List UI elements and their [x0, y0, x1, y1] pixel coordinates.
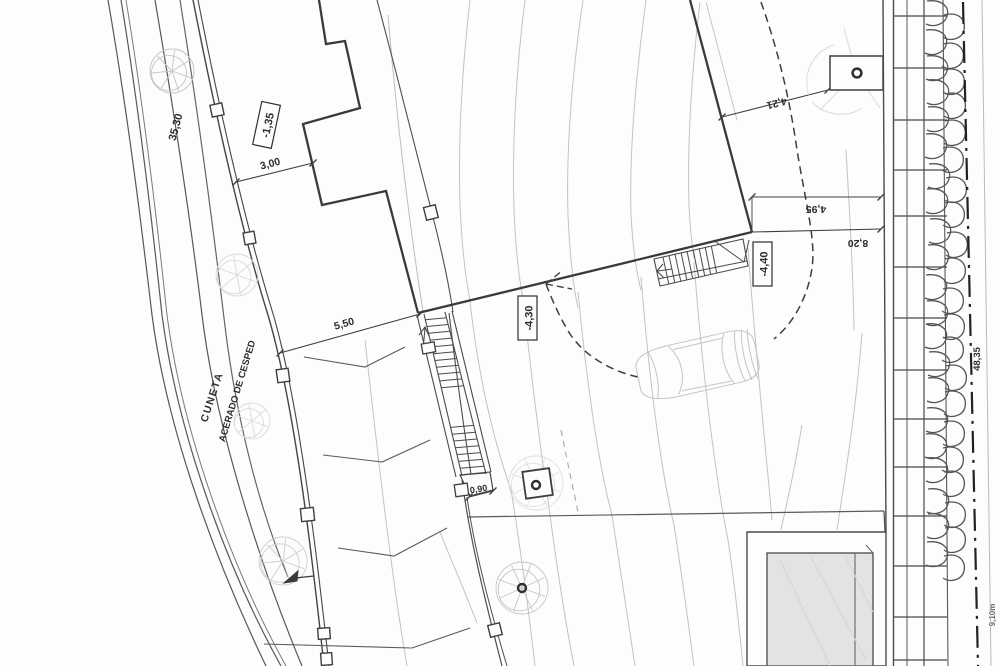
svg-text:-4,40: -4,40 — [759, 251, 771, 276]
svg-text:4,95: 4,95 — [806, 203, 827, 215]
svg-text:8,20: 8,20 — [848, 237, 869, 249]
svg-text:48,35: 48,35 — [972, 346, 983, 370]
svg-text:-4,30: -4,30 — [524, 305, 536, 330]
svg-text:9,10m: 9,10m — [988, 604, 997, 627]
